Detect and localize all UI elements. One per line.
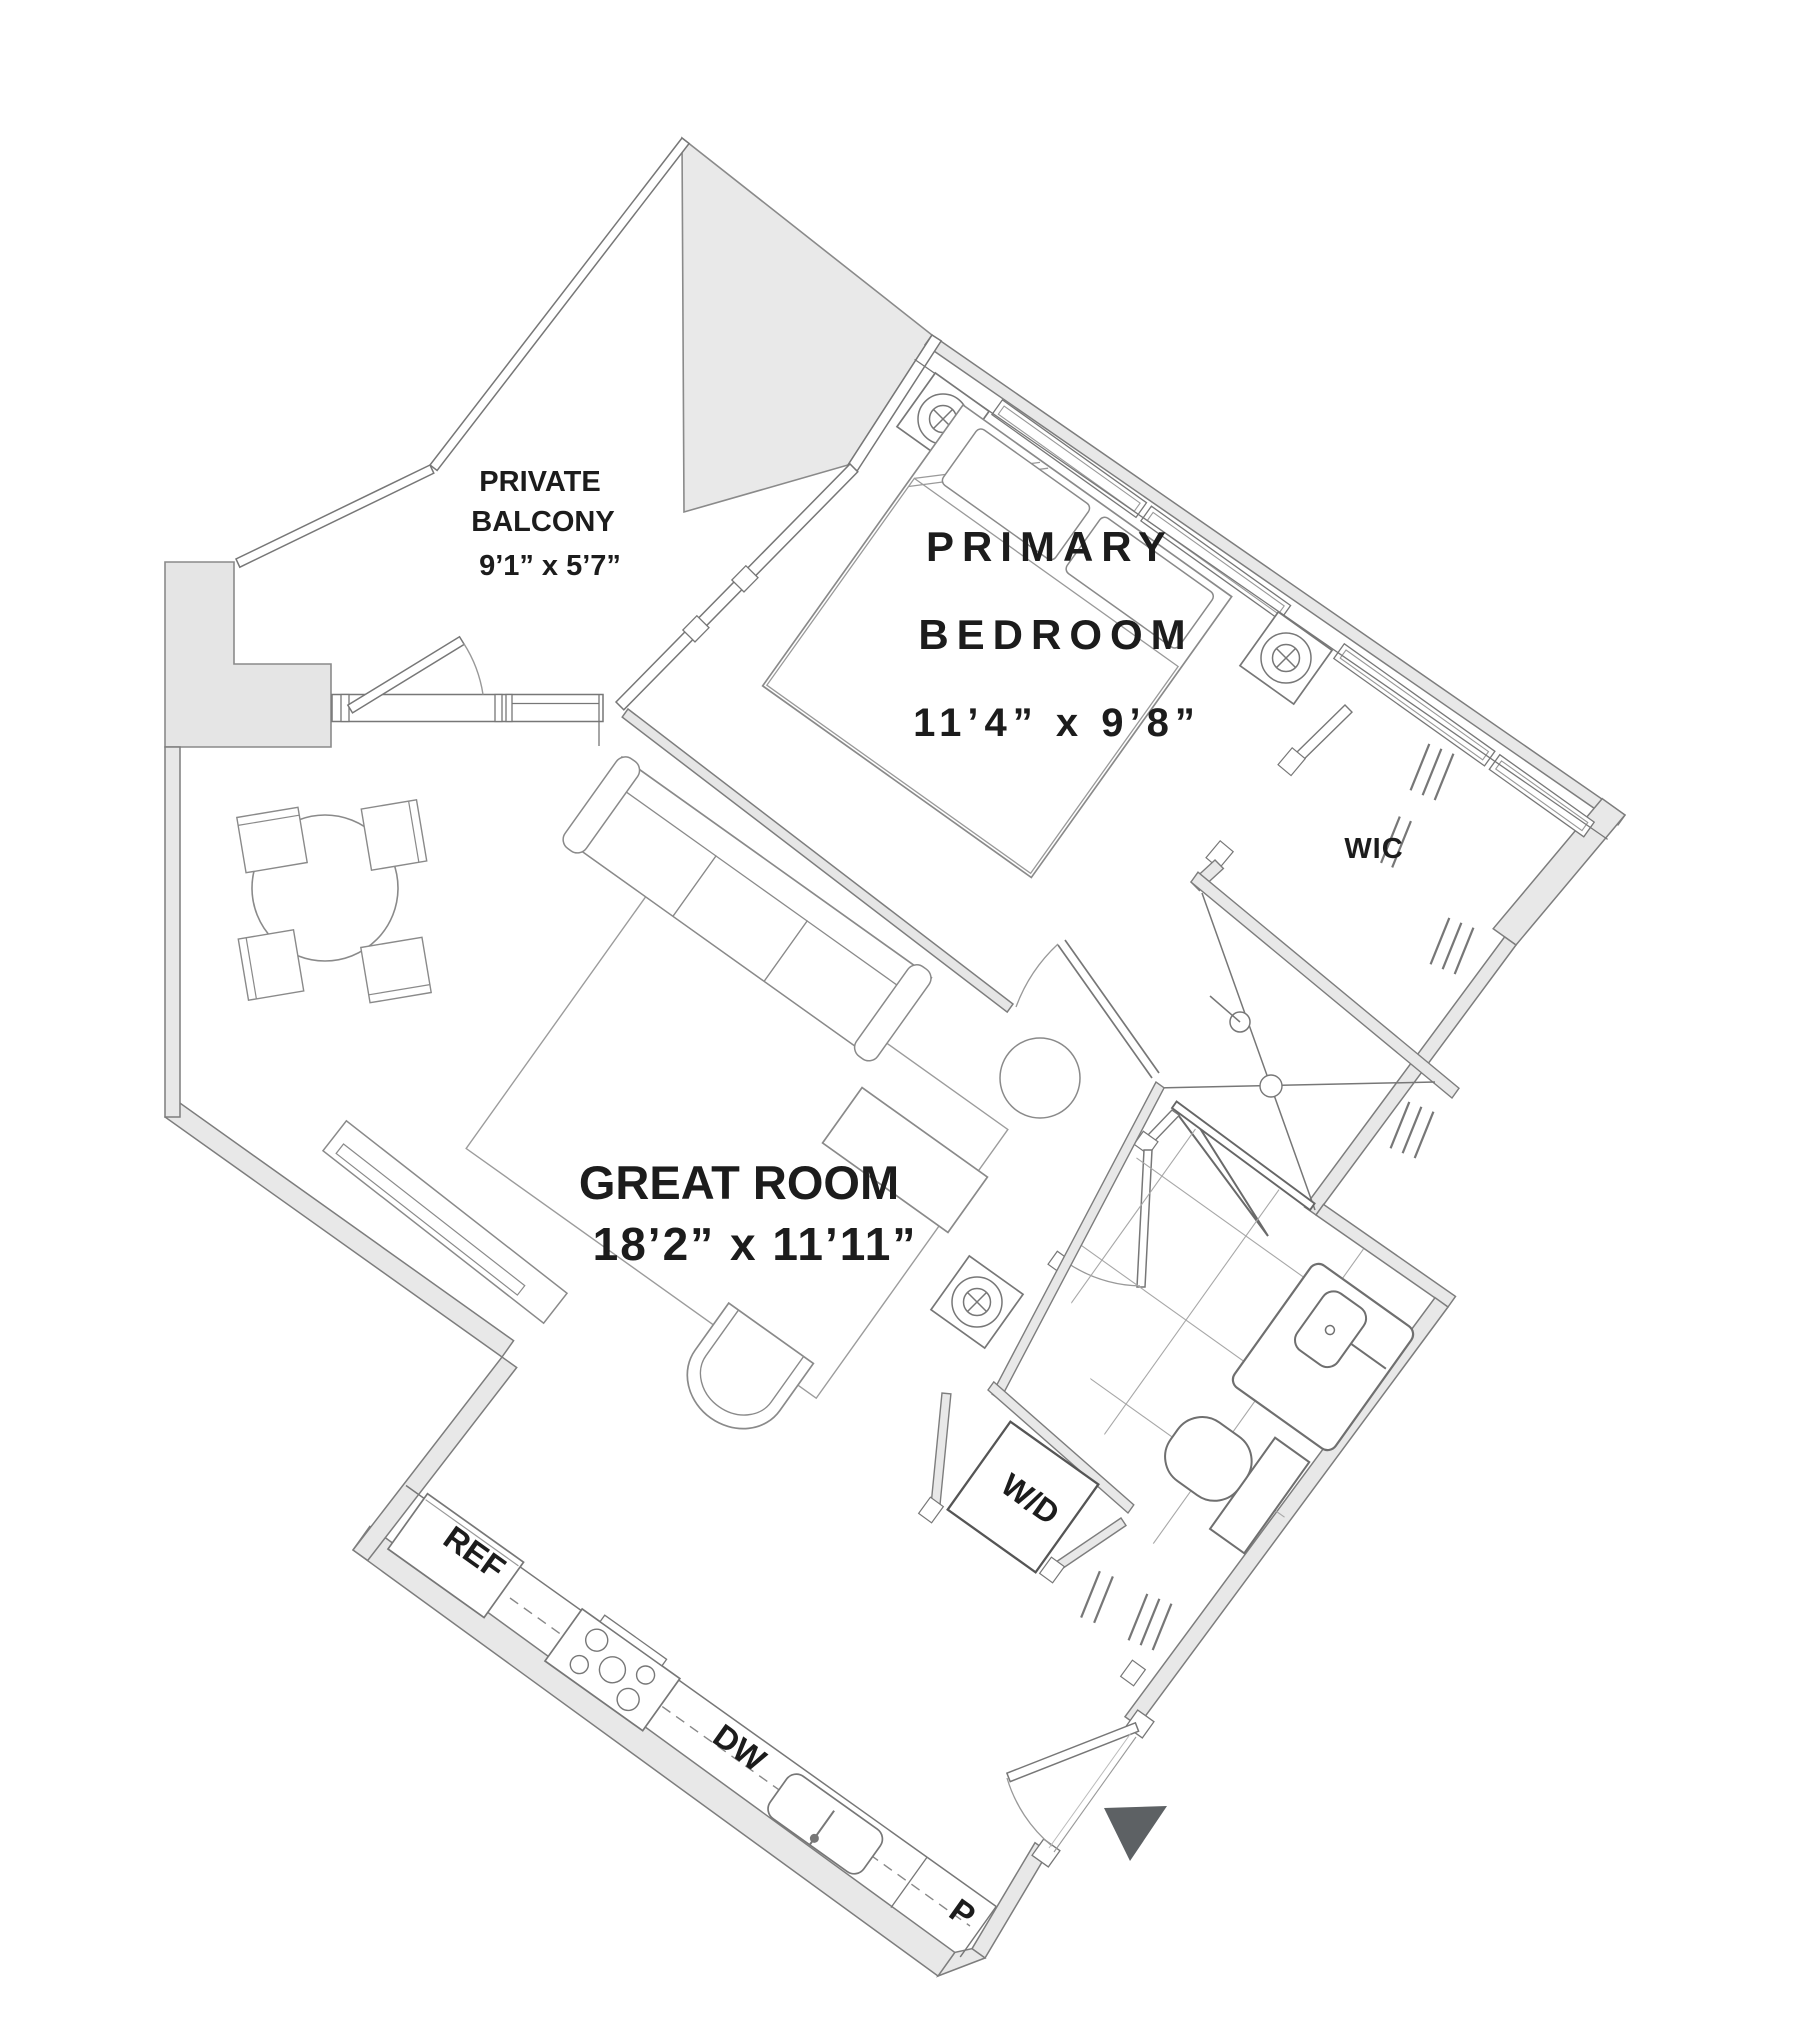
svg-text:18’2” x 11’11”: 18’2” x 11’11” [593, 1218, 918, 1270]
svg-text:GREAT ROOM: GREAT ROOM [579, 1156, 899, 1209]
svg-text:9’1” x 5’7”: 9’1” x 5’7” [479, 550, 621, 582]
svg-text:PRIVATE: PRIVATE [479, 466, 600, 498]
svg-text:11’4” x 9’8”: 11’4” x 9’8” [913, 701, 1201, 745]
svg-text:BEDROOM: BEDROOM [918, 611, 1193, 658]
svg-text:PRIMARY: PRIMARY [926, 523, 1174, 570]
svg-text:WIC: WIC [1344, 833, 1403, 865]
svg-text:BALCONY: BALCONY [471, 506, 614, 538]
